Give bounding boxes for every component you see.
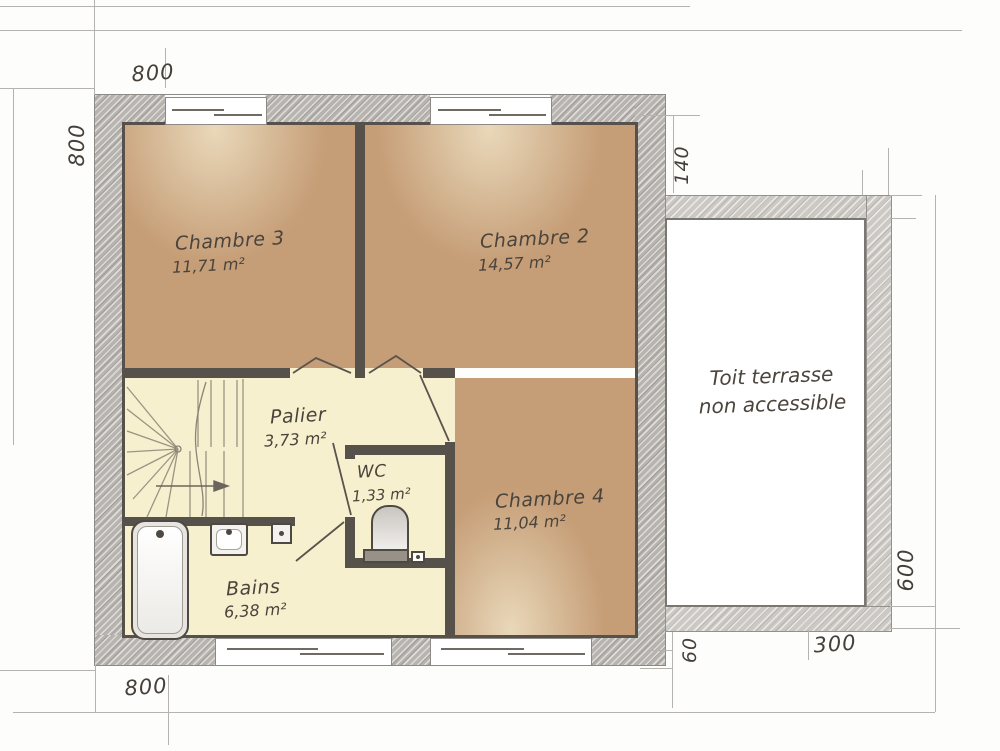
room-area-palier: 3,73 m² bbox=[264, 428, 328, 450]
floor-plan: 800 800 140 600 300 60 800 Chambre 3 11,… bbox=[0, 0, 1000, 751]
water-point-dot bbox=[279, 531, 284, 536]
room-label-bains: Bains bbox=[225, 576, 280, 601]
door-swing bbox=[296, 522, 344, 561]
dimension-line bbox=[640, 115, 700, 116]
dimension-line bbox=[94, 0, 95, 95]
drain-icon bbox=[156, 530, 164, 538]
bathtub-fixture bbox=[131, 520, 189, 640]
dimension-line bbox=[0, 88, 95, 89]
staircase bbox=[127, 379, 243, 517]
toilet-flush-button bbox=[411, 551, 425, 563]
dimension-top: 800 bbox=[117, 56, 189, 91]
door-swing bbox=[333, 443, 351, 515]
dimension-line bbox=[862, 170, 863, 195]
dimension-line bbox=[0, 6, 690, 7]
dimension-line bbox=[935, 195, 936, 712]
flush-dot bbox=[416, 555, 420, 559]
stair-direction-arrow bbox=[156, 481, 228, 491]
washbasin-fixture bbox=[210, 523, 248, 556]
door-swing bbox=[420, 375, 449, 441]
terrace-label: Toit terrasse non accessible bbox=[671, 361, 873, 420]
dimension-line bbox=[13, 88, 14, 445]
room-area-chambre4: 11,04 m² bbox=[493, 511, 567, 534]
dimension-line bbox=[0, 670, 95, 671]
dimension-line bbox=[888, 148, 889, 195]
dimension-line bbox=[0, 30, 962, 31]
dimension-terrace-height: 600 bbox=[876, 540, 936, 600]
dimension-line bbox=[95, 665, 96, 712]
dimension-terrace-width: 300 bbox=[794, 627, 876, 661]
dimension-bottom: 800 bbox=[105, 670, 187, 704]
dimension-bottom-offset: 60 bbox=[660, 620, 720, 680]
dimension-line bbox=[890, 628, 960, 629]
toilet-fixture bbox=[371, 505, 409, 553]
water-point-fixture bbox=[271, 523, 292, 544]
room-area-chambre3: 11,71 m² bbox=[172, 254, 246, 277]
dimension-line bbox=[890, 218, 916, 219]
bathtub-basin bbox=[137, 526, 183, 634]
dimension-line bbox=[13, 712, 935, 713]
room-area-wc: 1,33 m² bbox=[352, 484, 412, 505]
room-area-chambre2: 14,57 m² bbox=[478, 252, 552, 275]
door-swing bbox=[369, 356, 421, 373]
faucet-icon bbox=[226, 529, 232, 535]
dimension-line bbox=[890, 606, 935, 607]
dimension-left: 800 bbox=[47, 115, 107, 175]
room-label-palier: Palier bbox=[269, 404, 326, 429]
dimension-right-gap: 140 bbox=[652, 135, 712, 195]
dimension-line bbox=[890, 195, 922, 196]
room-area-bains: 6,38 m² bbox=[224, 599, 288, 621]
toilet-tank bbox=[363, 549, 409, 563]
room-label-wc: WC bbox=[356, 461, 387, 483]
door-swing bbox=[293, 358, 351, 373]
